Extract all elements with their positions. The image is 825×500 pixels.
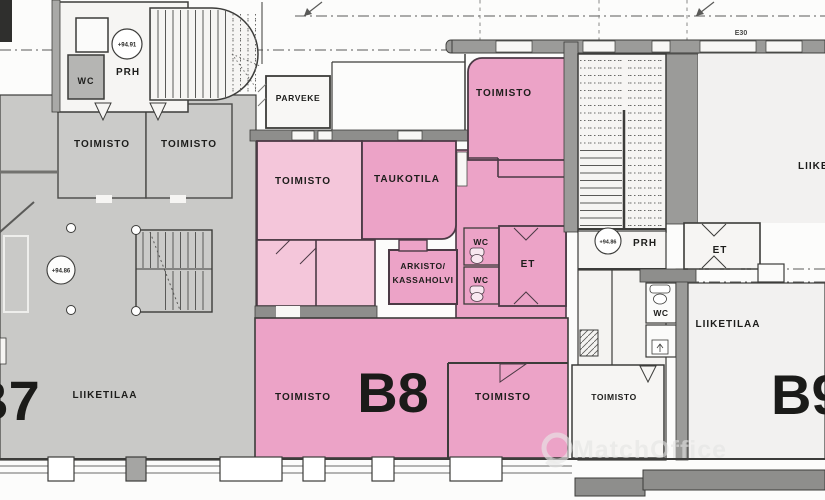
stair-right-lower: [580, 150, 622, 228]
label-wc-mid-top: WC: [473, 237, 488, 247]
wall-bottom-right-step: [575, 478, 645, 496]
label-toimisto-bottom: TOIMISTO: [591, 392, 637, 402]
label-et-right: ET: [713, 245, 728, 256]
stair-left: [132, 226, 213, 316]
watermark-text: MatchOffice: [573, 436, 727, 464]
block-stair-right: [564, 42, 698, 232]
wall-dark-corner: [0, 0, 12, 42]
stair-top-left: [150, 10, 232, 98]
column: [67, 224, 76, 233]
label-liiketilaa-right: LIIKETILAA: [696, 319, 761, 330]
elevation-marker-left: +94.86: [47, 256, 75, 284]
label-toimisto-top-right: TOIMISTO: [476, 88, 532, 99]
column: [67, 306, 76, 315]
label-taukotila: TAUKOTILA: [374, 174, 440, 185]
svg-text:+94.86: +94.86: [52, 269, 71, 275]
label-wc-right: WC: [653, 308, 668, 318]
svg-text:+94.91: +94.91: [118, 43, 137, 49]
label-arkisto-line1: ARKISTO/: [400, 261, 445, 271]
label-arkisto-line2: KASSAHOLVI: [392, 275, 453, 285]
label-liiketilaa-left: LIIKETILAA: [73, 390, 138, 401]
label-prh-left: PRH: [116, 67, 140, 78]
fire-rating-label: E30: [735, 30, 748, 37]
unit-label-b9: B9: [771, 363, 825, 426]
label-toimisto-pink-small: TOIMISTO: [275, 176, 331, 187]
window-post: [372, 457, 394, 481]
floorplan-stage: E30 +94.86 TOIMISTO TOIMISTO: [0, 0, 825, 500]
window-post: [48, 457, 74, 481]
room-toimisto-pink-small: [257, 141, 362, 240]
entry-step: [758, 264, 784, 282]
window-post: [450, 457, 502, 481]
label-et-mid: ET: [521, 259, 536, 270]
svg-text:+94.86: +94.86: [600, 240, 617, 246]
label-prh-right: PRH: [633, 238, 657, 249]
label-liiketilaa-right-edge: LIIKETILAA: [798, 161, 825, 172]
room-taukotila: [362, 141, 456, 239]
unit-label-b7: B7: [0, 369, 40, 432]
floorplan-canvas: E30 +94.86 TOIMISTO TOIMISTO: [0, 0, 825, 500]
label-wc-mid-bottom: WC: [473, 275, 488, 285]
elevation-marker-right: +94.86: [595, 228, 621, 254]
label-toimisto-gray-1: TOIMISTO: [74, 139, 130, 150]
label-parveke: PARVEKE: [276, 93, 321, 103]
wall-bottom-right: [643, 470, 825, 490]
wall-top-band: [446, 40, 825, 53]
label-toimisto-b8-left: TOIMISTO: [275, 392, 331, 403]
label-wc-top-left: WC: [78, 76, 95, 86]
unit-label-b8: B8: [357, 361, 429, 424]
room-toimisto-top-right: [468, 58, 566, 160]
window-post: [126, 457, 146, 481]
window-post: [303, 457, 325, 481]
shaft: [580, 330, 598, 356]
room-shaft: [76, 18, 108, 52]
toilet-fixture-icon: [650, 285, 670, 293]
label-toimisto-gray-2: TOIMISTO: [161, 139, 217, 150]
window-post: [220, 457, 282, 481]
elevation-marker-top-left: +94.91: [112, 29, 142, 59]
stair-right-upper: [580, 60, 622, 148]
label-toimisto-b8-right: TOIMISTO: [475, 392, 531, 403]
